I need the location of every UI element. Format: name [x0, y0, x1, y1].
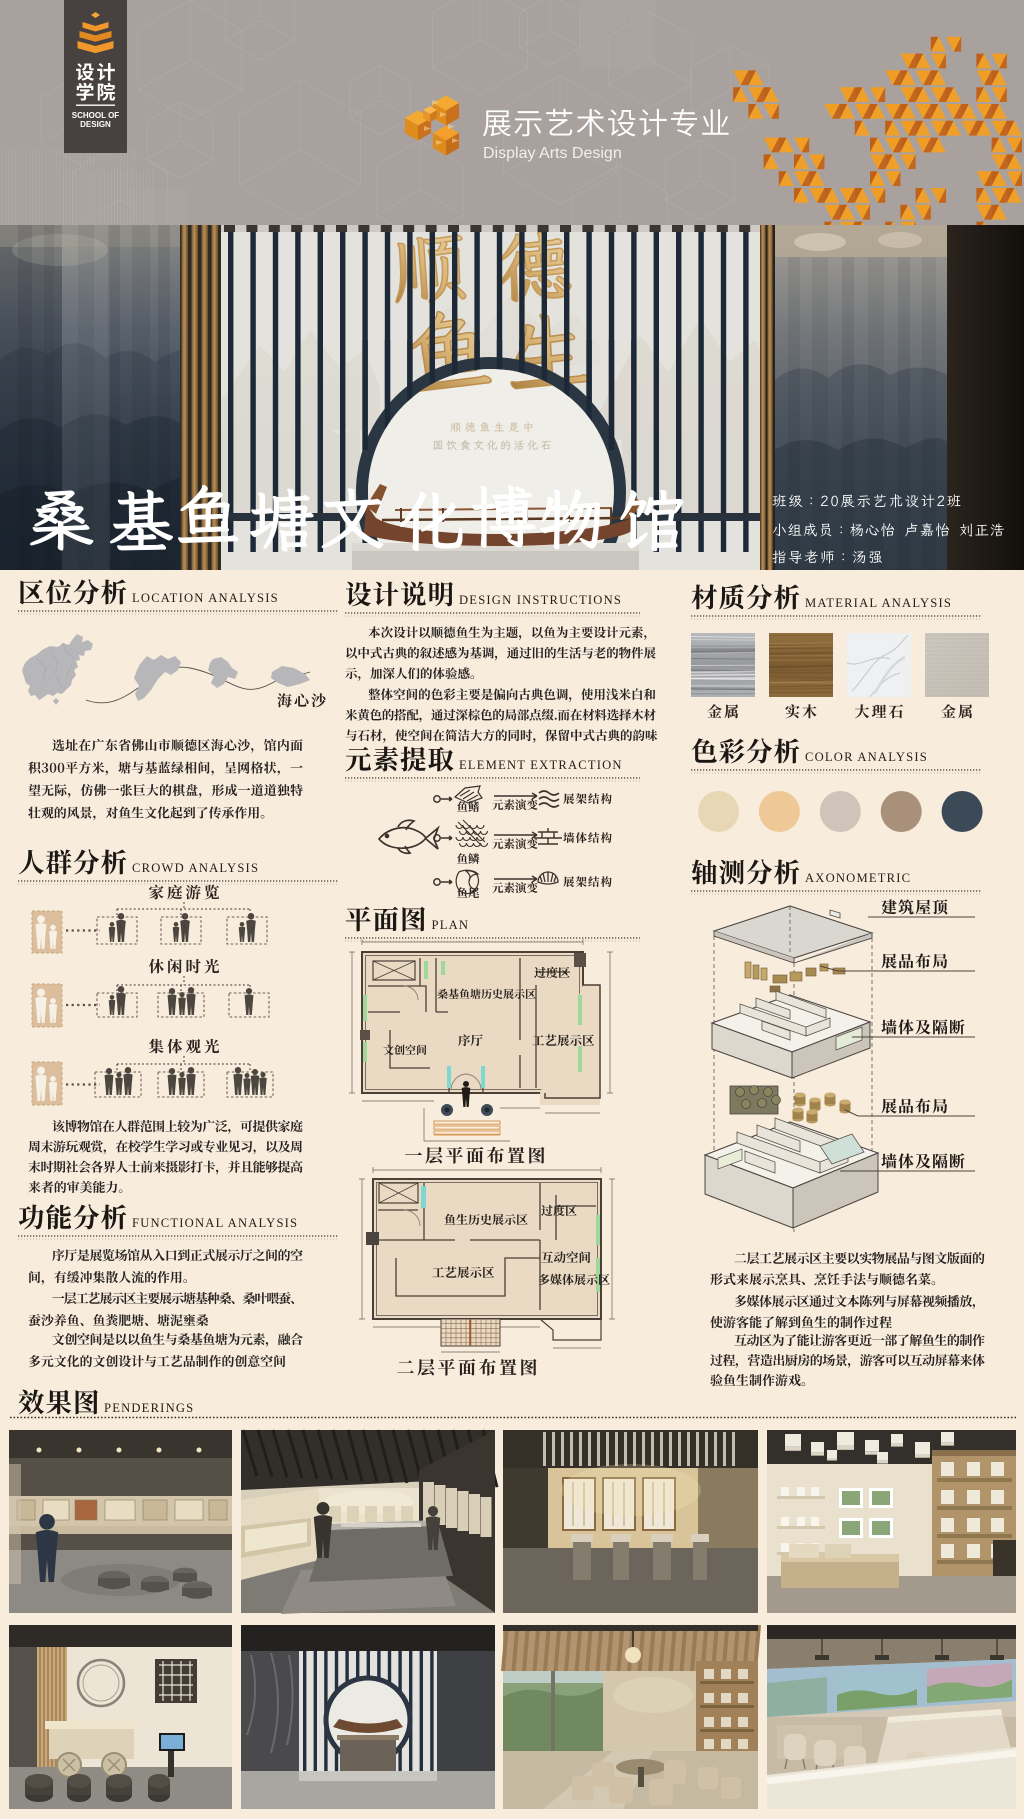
svg-text:DESIGN INSTRUCTIONS: DESIGN INSTRUCTIONS: [459, 593, 622, 607]
svg-text:ELEMENT EXTRACTION: ELEMENT EXTRACTION: [459, 758, 623, 772]
svg-text:LOCATION ANALYSIS: LOCATION ANALYSIS: [132, 591, 279, 605]
svg-text:DESIGN: DESIGN: [80, 120, 111, 129]
svg-text:AXONOMETRIC: AXONOMETRIC: [805, 871, 911, 885]
svg-text:FUNCTIONAL ANALYSIS: FUNCTIONAL ANALYSIS: [132, 1216, 298, 1230]
svg-text:MATERIAL ANALYSIS: MATERIAL ANALYSIS: [805, 596, 952, 610]
svg-text:CROWD ANALYSIS: CROWD ANALYSIS: [132, 861, 259, 875]
svg-text:COLOR ANALYSIS: COLOR ANALYSIS: [805, 750, 928, 764]
svg-text:PLAN: PLAN: [432, 918, 470, 932]
svg-text:Display Arts Design: Display Arts Design: [483, 145, 622, 162]
svg-text:SCHOOL OF: SCHOOL OF: [72, 111, 120, 120]
svg-text:PENDERINGS: PENDERINGS: [104, 1401, 194, 1415]
